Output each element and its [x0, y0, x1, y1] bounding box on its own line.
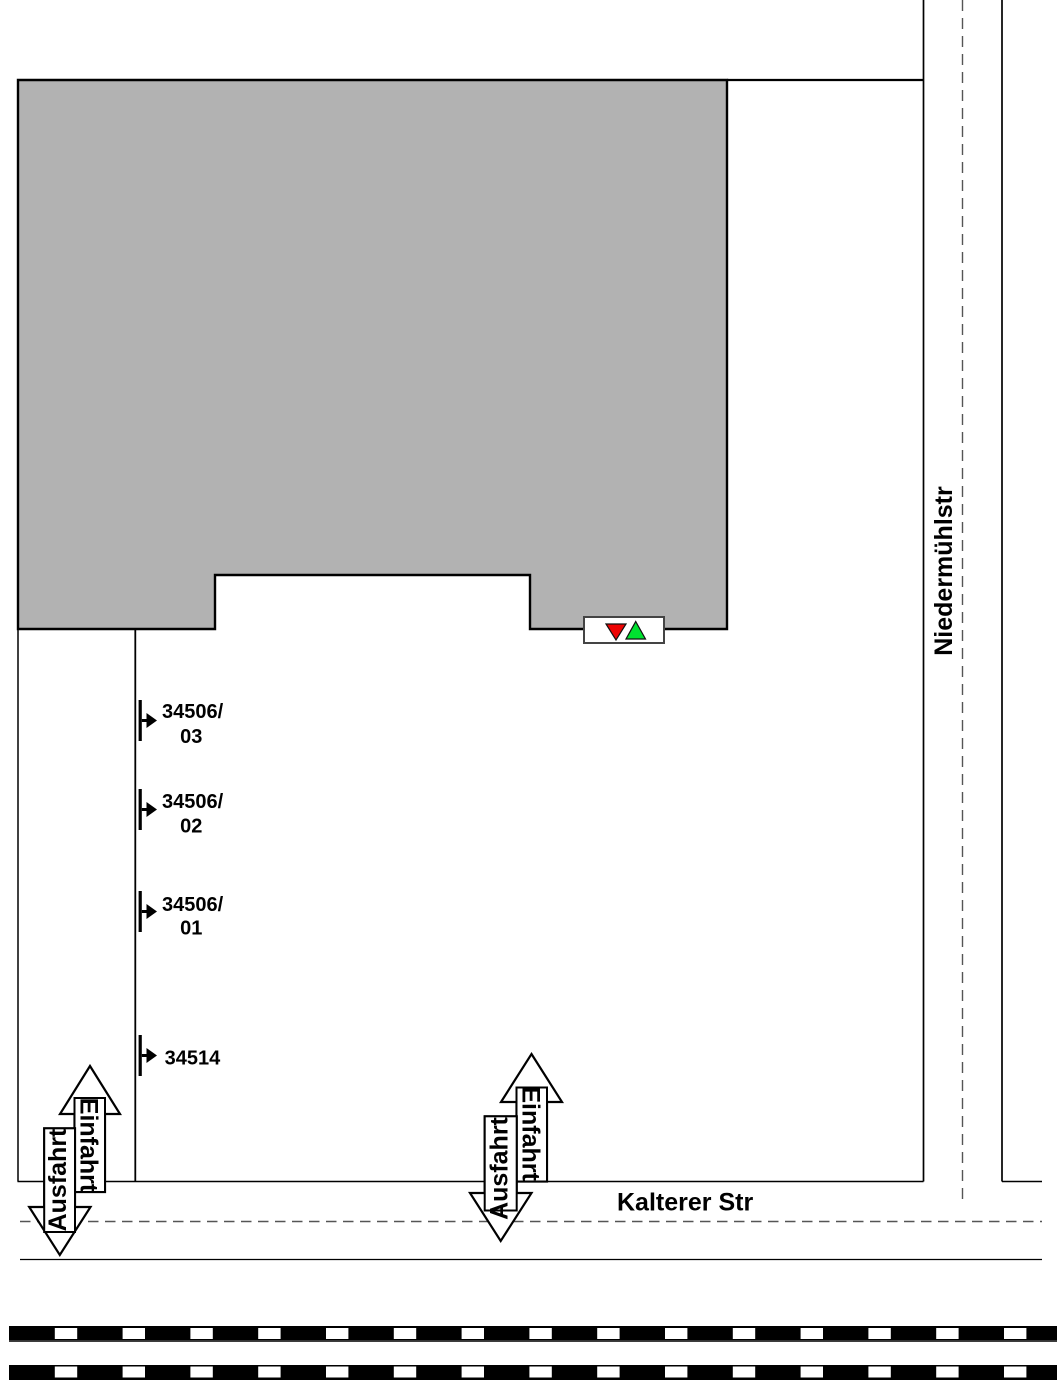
svg-text:02: 02 — [180, 816, 202, 838]
svg-text:Einfahrt: Einfahrt — [75, 1098, 103, 1193]
svg-text:34506/: 34506/ — [162, 791, 224, 813]
svg-text:01: 01 — [180, 918, 202, 940]
svg-text:34506/: 34506/ — [162, 894, 224, 916]
svg-text:34514: 34514 — [165, 1048, 221, 1070]
svg-text:Ausfahrt: Ausfahrt — [485, 1116, 513, 1219]
svg-text:Niedermühlstr: Niedermühlstr — [930, 486, 958, 656]
svg-text:34506/: 34506/ — [162, 701, 224, 723]
svg-text:03: 03 — [180, 726, 202, 748]
svg-text:Ausfahrt: Ausfahrt — [44, 1128, 72, 1231]
svg-text:Einfahrt: Einfahrt — [517, 1086, 545, 1181]
svg-text:Kalterer Str: Kalterer Str — [617, 1189, 753, 1217]
